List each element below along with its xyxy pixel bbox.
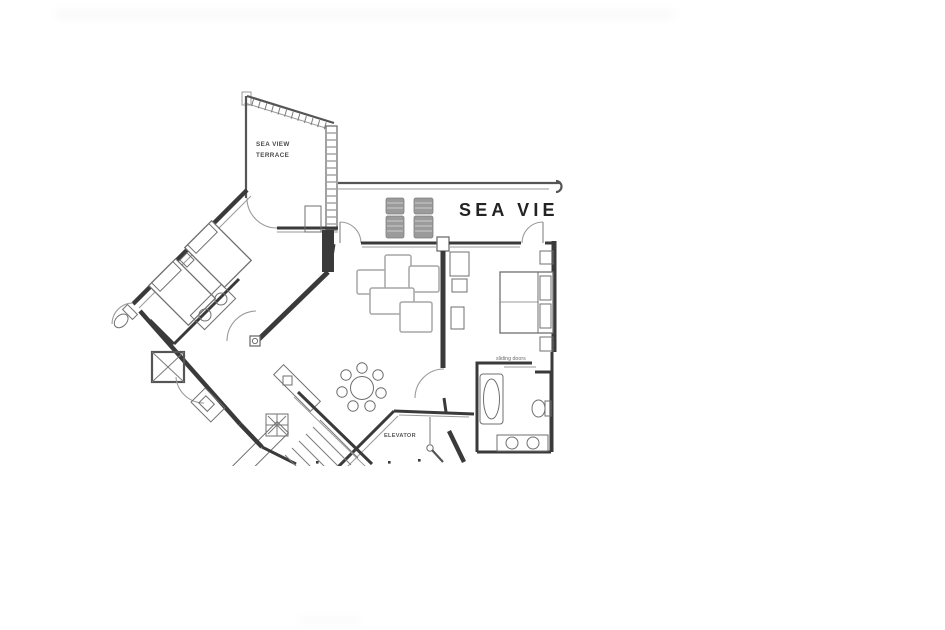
dining-table xyxy=(337,363,386,411)
corridor-wall-stub xyxy=(449,431,464,462)
nightstand xyxy=(540,251,553,264)
ensuite-partition-2 xyxy=(150,320,174,344)
bedroom-living-diagonal-wall xyxy=(258,272,328,340)
sun-lounger-1 xyxy=(386,198,404,238)
terrace-label-line2: TERRACE xyxy=(256,152,289,159)
vanity-double-sink xyxy=(497,435,548,451)
sliding-doors-label: sliding doors xyxy=(496,356,526,362)
bathroom: sliding doors xyxy=(477,356,551,452)
nightstand xyxy=(540,337,553,351)
corridor-diagonal-wall-b xyxy=(298,392,372,464)
window-wall xyxy=(322,222,556,272)
dining-chair xyxy=(376,388,386,398)
divider-wall-stub xyxy=(444,398,446,412)
bedroom-left-wing xyxy=(111,190,333,482)
entry-toilet xyxy=(111,305,138,332)
terrace-railing-outer xyxy=(247,96,334,123)
wall-post xyxy=(437,237,449,251)
double-bed xyxy=(500,272,553,333)
stove xyxy=(266,414,288,436)
elevator-label: ELEVATOR xyxy=(384,433,416,439)
toilet xyxy=(532,400,551,417)
kitchen-counter xyxy=(228,422,289,483)
terrace-door-arc xyxy=(247,198,277,228)
sun-lounger-2 xyxy=(414,198,433,238)
door-leaf xyxy=(432,450,443,462)
bathroom-left-top-wall xyxy=(477,363,532,452)
dining-chair xyxy=(341,370,351,380)
corridor-top-wall xyxy=(394,411,474,414)
sink xyxy=(506,437,518,449)
column-dot xyxy=(316,461,319,464)
floor-plan-page: SEA VIEW TERRACE SEA VIE xyxy=(0,0,945,630)
kitchen xyxy=(191,388,296,482)
dining-chair xyxy=(357,363,367,373)
sofa xyxy=(357,255,439,332)
terrace: SEA VIEW TERRACE xyxy=(242,92,338,232)
dining-chair xyxy=(365,401,375,411)
divider-door-arc xyxy=(415,369,444,398)
console-sideboard xyxy=(274,365,321,412)
shower xyxy=(152,352,184,382)
dining-chair xyxy=(337,387,347,397)
balcony: SEA VIE xyxy=(338,181,562,238)
wall-end-cap xyxy=(250,336,260,346)
terrace-column xyxy=(326,126,337,230)
column-dot xyxy=(388,461,391,464)
bedroom-door-arc xyxy=(522,222,543,243)
floor-plan-drawing: SEA VIEW TERRACE SEA VIE xyxy=(0,0,945,630)
corridor-diagonal-wall-b-inner xyxy=(294,397,366,467)
bathtub xyxy=(480,374,503,424)
sea-view-banner: SEA VIE xyxy=(459,200,559,220)
dining-chair xyxy=(348,401,358,411)
kitchen-storage xyxy=(191,388,225,422)
bedroom-right xyxy=(450,251,553,351)
corridor-top-wall-inner xyxy=(399,415,469,417)
column-dot xyxy=(418,459,421,462)
corridor-door xyxy=(427,417,443,462)
living-room xyxy=(274,251,446,412)
sink xyxy=(527,437,539,449)
wing-outer-wall-corner xyxy=(240,424,262,447)
living-door-arc xyxy=(340,222,361,243)
dining-chair xyxy=(373,370,383,380)
terrace-label-line1: SEA VIEW xyxy=(256,141,290,148)
desk-dresser xyxy=(450,252,469,329)
